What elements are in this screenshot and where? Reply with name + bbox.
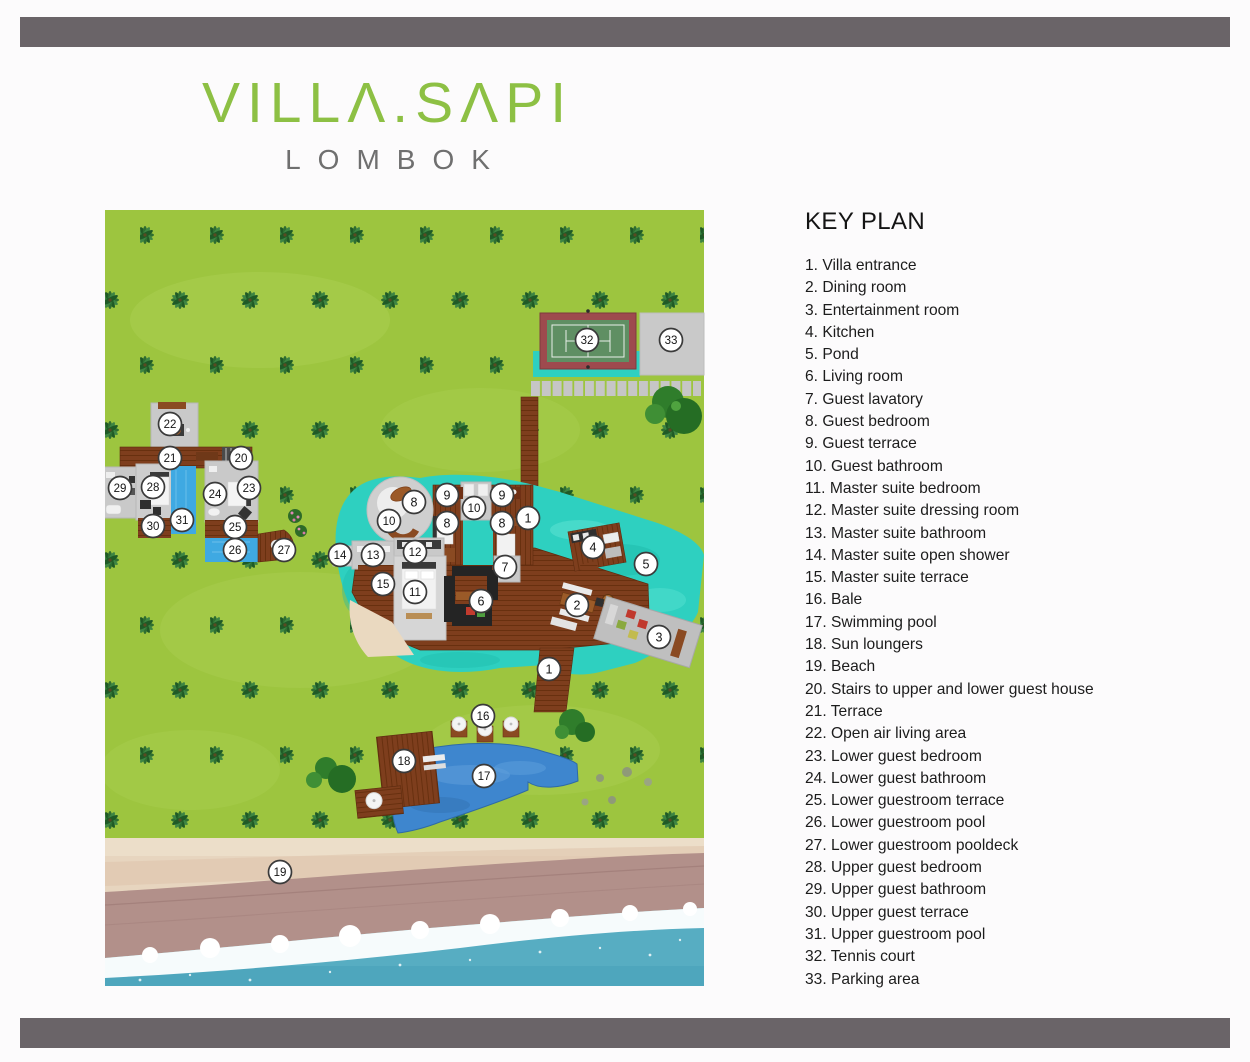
map-marker: 7 [494,556,517,579]
svg-text:10: 10 [468,503,481,515]
map-marker: 28 [142,476,165,499]
svg-text:8: 8 [444,517,451,531]
key-plan-item: 2. Dining room [805,277,1235,299]
svg-text:12: 12 [409,547,422,559]
villa-logo: VILLΛ.SΛPI LOMBOK [130,72,645,176]
map-marker: 9 [436,484,459,507]
svg-text:3: 3 [656,631,663,645]
key-plan-item: 4. Kitchen [805,322,1235,344]
svg-text:32: 32 [581,335,594,347]
key-plan-item: 15. Master suite terrace [805,567,1235,589]
map-marker: 10 [378,510,401,533]
key-plan-panel: KEY PLAN 1. Villa entrance2. Dining room… [805,208,1235,991]
key-plan-item: 10. Guest bathroom [805,456,1235,478]
key-plan-item: 29. Upper guest bathroom [805,879,1235,901]
key-plan-item: 33. Parking area [805,969,1235,991]
map-marker: 24 [204,483,227,506]
key-plan-item: 25. Lower guestroom terrace [805,790,1235,812]
map-marker: 31 [171,509,194,532]
svg-text:4: 4 [590,541,597,555]
svg-text:33: 33 [665,335,678,347]
map-marker: 6 [470,590,493,613]
key-plan-item: 1. Villa entrance [805,255,1235,277]
bottom-bar [20,1018,1230,1048]
map-marker: 4 [582,536,605,559]
key-plan-item: 3. Entertainment room [805,300,1235,322]
svg-text:30: 30 [147,521,160,533]
map-marker: 2 [566,594,589,617]
key-plan-item: 23. Lower guest bedroom [805,746,1235,768]
map-marker: 29 [109,477,132,500]
svg-text:8: 8 [499,517,506,531]
site-plan-svg: 3233222120292824233130252627810910898171… [105,210,705,986]
map-marker: 22 [159,413,182,436]
map-marker: 10 [463,497,486,520]
key-plan-item: 20. Stairs to upper and lower guest hous… [805,679,1235,701]
key-plan-item: 26. Lower guestroom pool [805,812,1235,834]
map-marker: 1 [538,658,561,681]
svg-text:22: 22 [164,419,177,431]
svg-text:19: 19 [274,867,287,879]
top-bar [20,17,1230,47]
svg-text:24: 24 [209,489,222,501]
svg-text:29: 29 [114,483,127,495]
svg-text:9: 9 [499,489,506,503]
svg-text:14: 14 [334,550,347,562]
map-marker: 5 [635,553,658,576]
svg-text:7: 7 [502,561,509,575]
map-marker: 1 [517,507,540,530]
key-plan-title: KEY PLAN [805,208,1235,236]
svg-text:6: 6 [478,595,485,609]
map-marker: 26 [224,539,247,562]
svg-text:2: 2 [574,599,581,613]
logo-title: VILLΛ.SΛPI [130,72,645,135]
logo-subtitle: LOMBOK [130,144,645,176]
map-marker: 8 [436,512,459,535]
key-plan-item: 14. Master suite open shower [805,545,1235,567]
map-marker: 8 [403,491,426,514]
map-marker: 8 [491,512,514,535]
svg-text:25: 25 [229,522,242,534]
svg-text:9: 9 [444,489,451,503]
map-marker: 15 [372,573,395,596]
svg-text:5: 5 [643,558,650,572]
svg-text:8: 8 [411,496,418,510]
key-plan-item: 31. Upper guestroom pool [805,924,1235,946]
key-plan-item: 22. Open air living area [805,723,1235,745]
svg-text:20: 20 [235,453,248,465]
lower-pool-deck [355,786,404,819]
key-plan-item: 32. Tennis court [805,946,1235,968]
key-plan-item: 11. Master suite bedroom [805,478,1235,500]
svg-text:1: 1 [546,663,553,677]
svg-text:27: 27 [278,545,291,557]
key-plan-item: 9. Guest terrace [805,433,1235,455]
key-plan-item: 28. Upper guest bedroom [805,857,1235,879]
map-marker: 30 [142,515,165,538]
map-marker: 25 [224,516,247,539]
key-plan-item: 21. Terrace [805,701,1235,723]
map-marker: 33 [660,329,683,352]
key-plan-list: 1. Villa entrance2. Dining room3. Entert… [805,255,1235,991]
key-plan-item: 5. Pond [805,344,1235,366]
svg-text:26: 26 [229,545,242,557]
map-marker: 13 [362,544,385,567]
svg-text:13: 13 [367,550,380,562]
key-plan-item: 12. Master suite dressing room [805,500,1235,522]
key-plan-item: 13. Master suite bathroom [805,523,1235,545]
svg-text:1: 1 [525,512,532,526]
map-marker: 9 [491,484,514,507]
map-marker: 16 [472,705,495,728]
svg-text:18: 18 [398,756,411,768]
map-marker: 21 [159,447,182,470]
key-plan-item: 8. Guest bedroom [805,411,1235,433]
key-plan-item: 18. Sun loungers [805,634,1235,656]
key-plan-item: 16. Bale [805,589,1235,611]
key-plan-item: 17. Swimming pool [805,612,1235,634]
map-marker: 32 [576,329,599,352]
svg-text:11: 11 [409,587,421,599]
key-plan-item: 6. Living room [805,366,1235,388]
key-plan-item: 27. Lower guestroom pooldeck [805,835,1235,857]
beach [105,838,704,986]
map-marker: 27 [273,539,296,562]
map-marker: 19 [269,861,292,884]
svg-text:23: 23 [243,483,256,495]
map-marker: 14 [329,544,352,567]
svg-text:10: 10 [383,516,396,528]
map-marker: 12 [404,541,427,564]
svg-text:15: 15 [377,579,390,591]
site-plan-map: 3233222120292824233130252627810910898171… [105,210,705,986]
map-marker: 18 [393,750,416,773]
key-plan-item: 30. Upper guest terrace [805,902,1235,924]
map-marker: 20 [230,447,253,470]
svg-text:28: 28 [147,482,160,494]
key-plan-item: 19. Beach [805,656,1235,678]
svg-text:17: 17 [478,771,491,783]
map-marker: 23 [238,477,261,500]
svg-text:21: 21 [164,453,177,465]
svg-text:16: 16 [477,711,490,723]
map-marker: 3 [648,626,671,649]
key-plan-item: 24. Lower guest bathroom [805,768,1235,790]
svg-text:31: 31 [176,515,189,527]
map-marker: 11 [404,581,427,604]
key-plan-item: 7. Guest lavatory [805,389,1235,411]
map-marker: 17 [473,765,496,788]
